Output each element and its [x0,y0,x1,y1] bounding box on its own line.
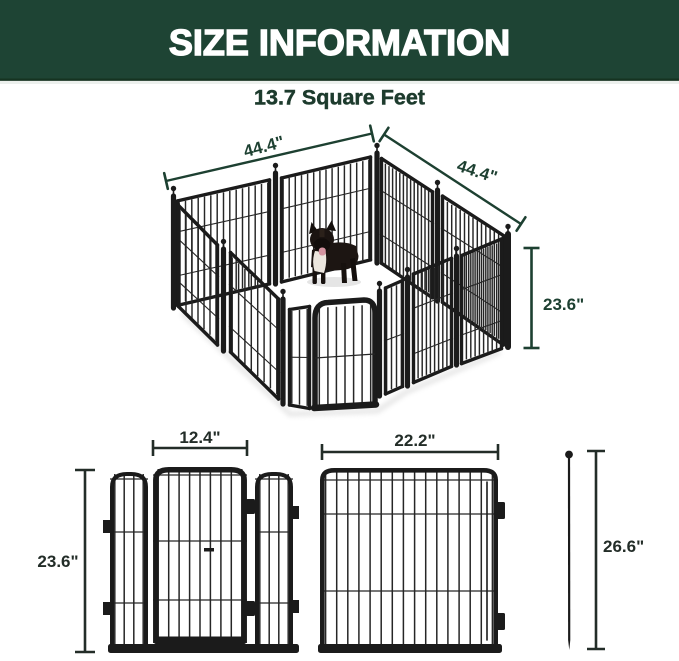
svg-text:22.2": 22.2" [394,431,435,450]
svg-text:23.6": 23.6" [543,295,584,314]
svg-text:SIZE INFORMATION: SIZE INFORMATION [169,22,510,63]
svg-text:23.6": 23.6" [37,552,78,571]
svg-text:12.4": 12.4" [179,428,220,447]
svg-text:13.7 Square Feet: 13.7 Square Feet [254,86,425,110]
svg-text:26.6": 26.6" [603,537,644,556]
